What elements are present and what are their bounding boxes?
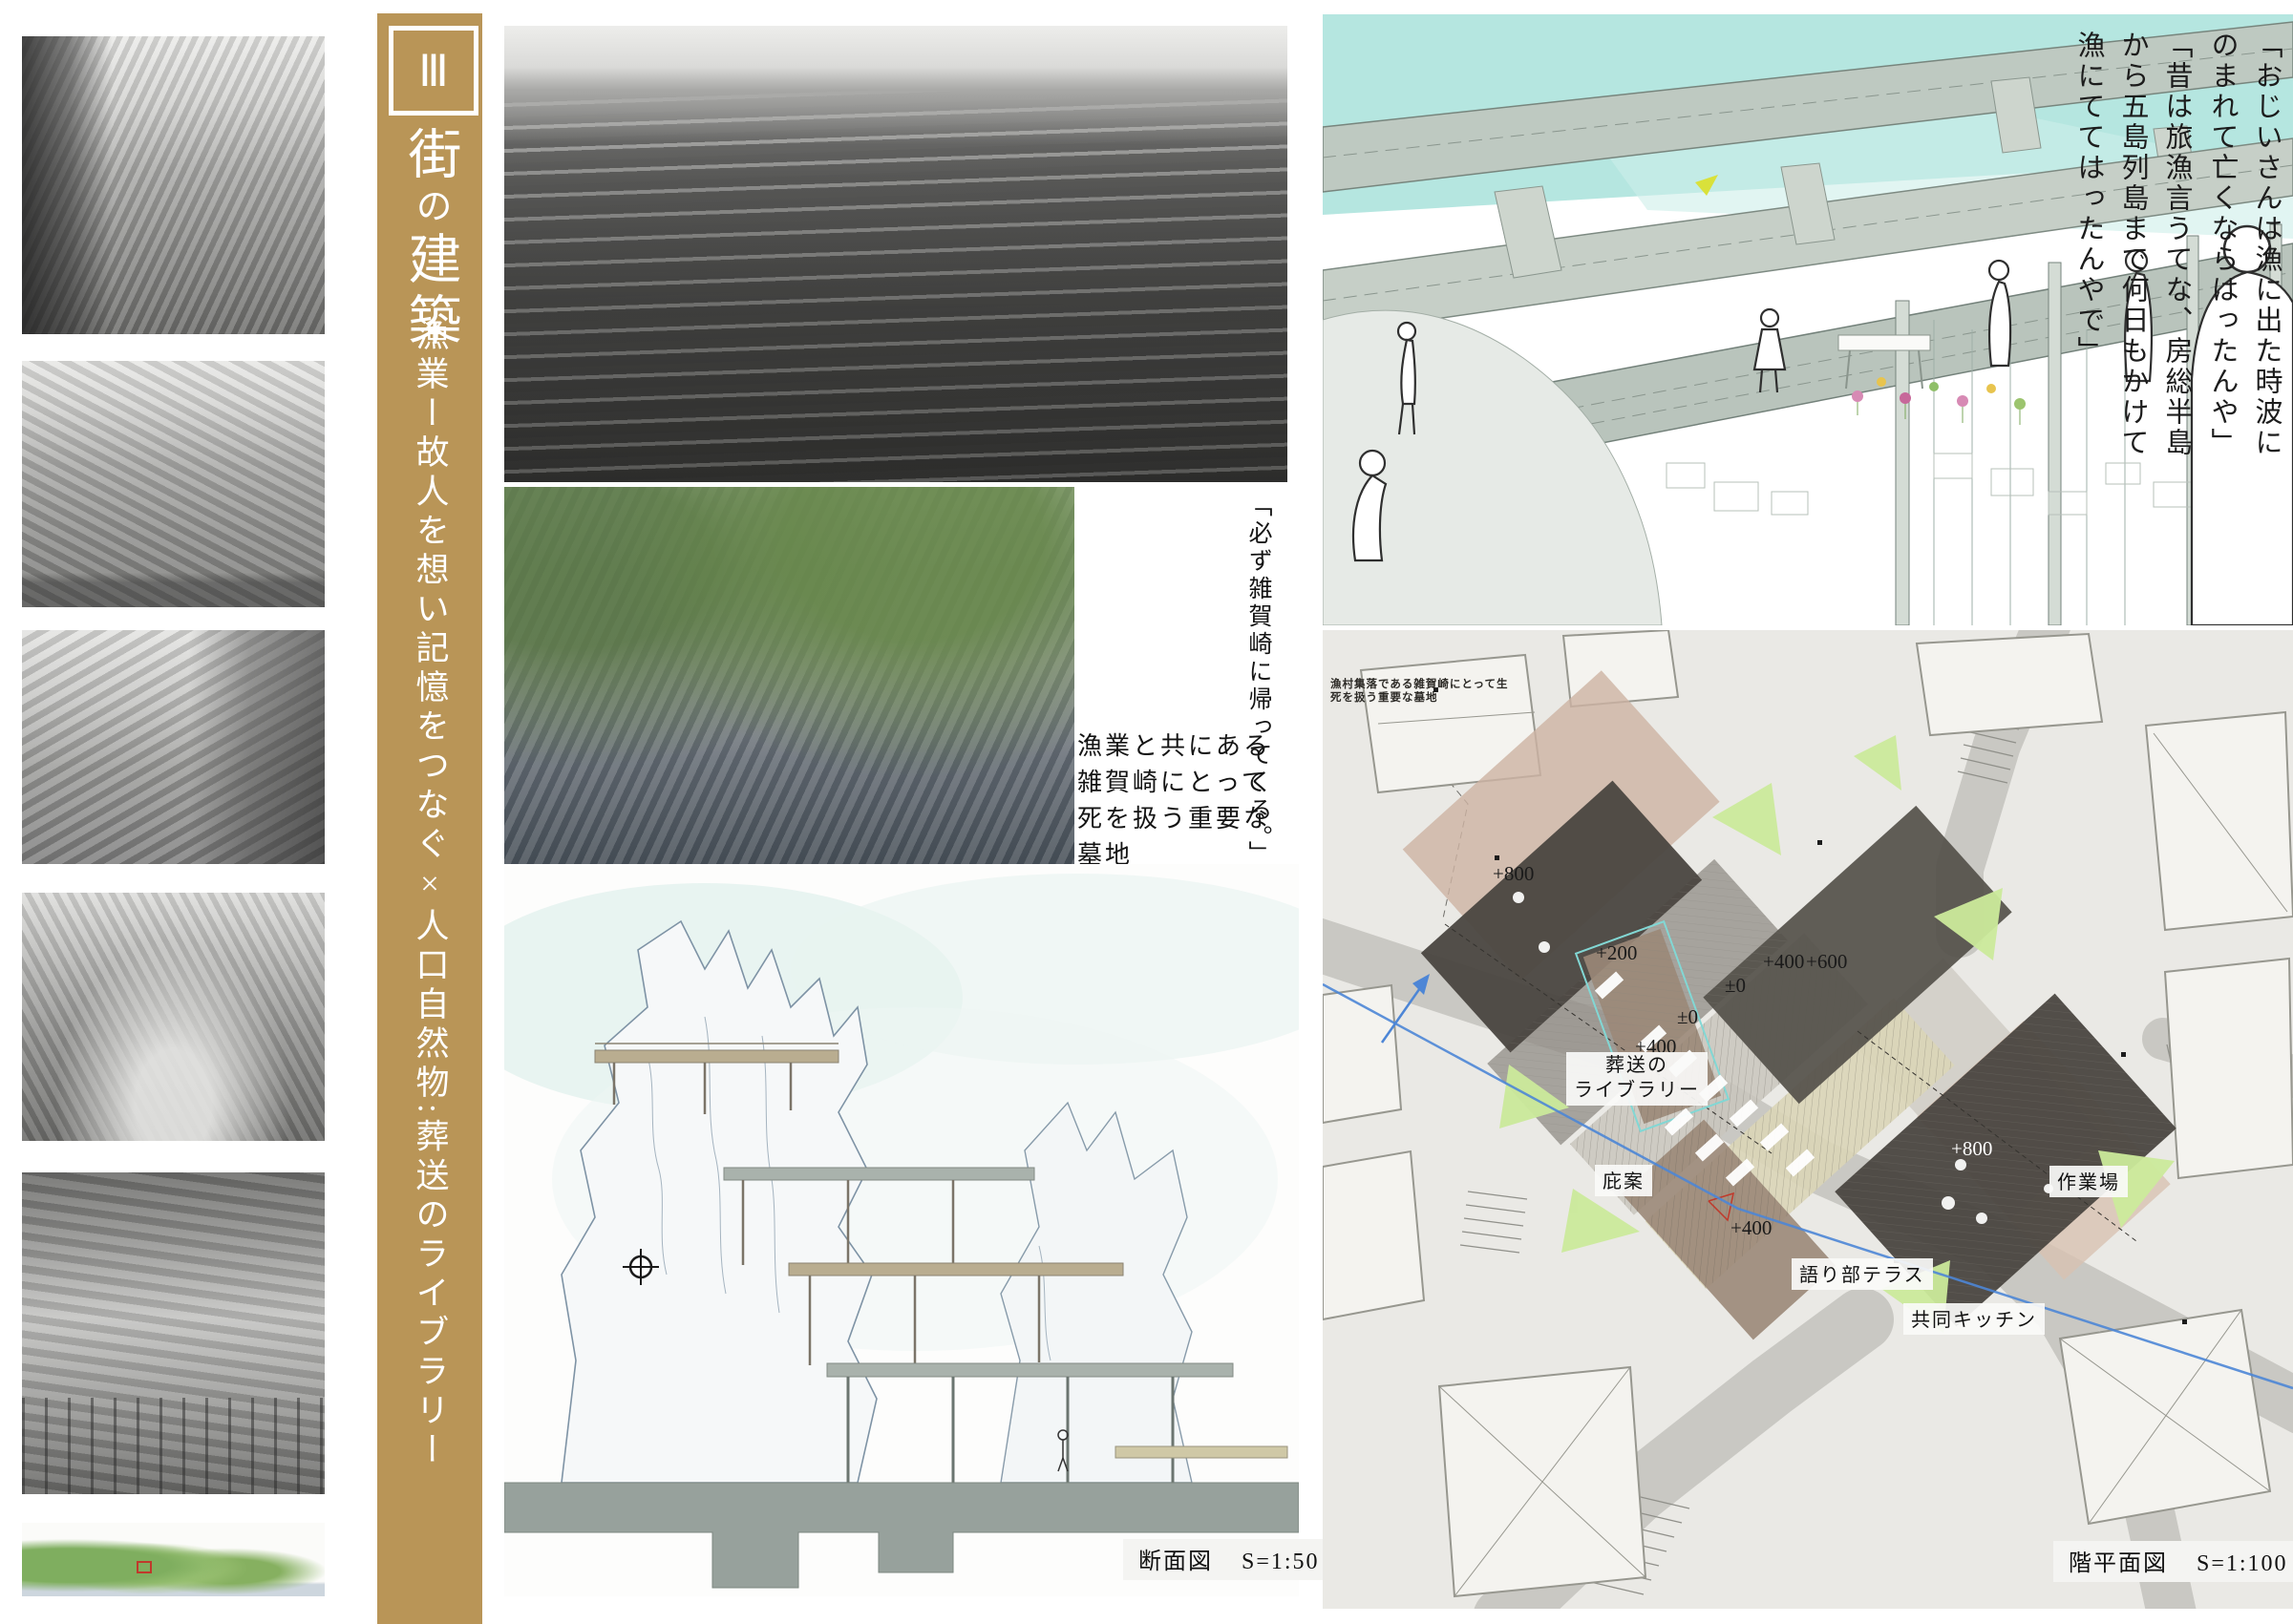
elevation-mark: +400 bbox=[1763, 950, 1804, 974]
label-workshop: 作業場 bbox=[2049, 1166, 2128, 1197]
elevation-mark: +200 bbox=[1596, 941, 1637, 965]
banner-title-part: の bbox=[410, 187, 450, 231]
cemetery-caption-line: 死を扱う重要な bbox=[1077, 800, 1271, 836]
section-drawing bbox=[504, 864, 1299, 1596]
plan-annotation-line: 漁村集落である雑賀崎にとって生 bbox=[1330, 678, 1508, 691]
coast-section-sketch bbox=[22, 1523, 325, 1596]
presentation-board: Ⅲ 街の建築 漁業ー故人を想い記憶をつなぐ×人口自然物:葬送のライブラリー 「必… bbox=[0, 0, 2293, 1624]
label-line: 葬送の bbox=[1574, 1053, 1700, 1078]
elevation-mark: +600 bbox=[1806, 950, 1847, 974]
site-location-marker bbox=[137, 1561, 152, 1573]
photo-town-fence bbox=[22, 1172, 325, 1494]
quote-line: から五島列島まで何日もかけて bbox=[2113, 31, 2153, 603]
label-funeral-library: 葬送の ライブラリー bbox=[1566, 1052, 1708, 1106]
elevation-mark: ±0 bbox=[1725, 974, 1746, 998]
section-scale: S=1:50 bbox=[1242, 1550, 1320, 1574]
chapter-numeral: Ⅲ bbox=[418, 45, 449, 96]
photo-town-alley bbox=[22, 36, 325, 334]
label-line: ライブラリー bbox=[1574, 1078, 1700, 1103]
title-banner: Ⅲ 街の建築 漁業ー故人を想い記憶をつなぐ×人口自然物:葬送のライブラリー bbox=[377, 13, 482, 1624]
photo-hillside-cemetery-bw bbox=[504, 26, 1287, 482]
quote-line: 「昔は旅漁言うてな、房総半島 bbox=[2156, 31, 2197, 603]
quote-line: 「おじいさんは漁に出た時波に bbox=[2246, 31, 2286, 603]
elevation-mark: +400 bbox=[1730, 1216, 1772, 1240]
chapter-numeral-box: Ⅲ bbox=[389, 26, 478, 116]
elevation-mark: +800 bbox=[1493, 862, 1534, 886]
section-title: 断面図 bbox=[1138, 1550, 1213, 1574]
photo-town-houses bbox=[22, 630, 325, 864]
plan-figure-label: 階平面図S=1:100 bbox=[2053, 1541, 2293, 1582]
cemetery-caption: 漁業と共にある 雑賀崎にとって 死を扱う重要な 墓地 bbox=[1077, 728, 1271, 873]
section-figure-label: 断面図S=1:50 bbox=[1123, 1539, 1335, 1580]
elevation-mark: ±0 bbox=[1677, 1005, 1698, 1029]
plan-annotation: 漁村集落である雑賀崎にとって生 死を扱う重要な墓地 bbox=[1330, 678, 1508, 705]
cemetery-caption-line: 雑賀崎にとって bbox=[1077, 764, 1271, 800]
quote-line: 漁にててはったんやで」 bbox=[2069, 31, 2109, 603]
plan-annotation-line: 死を扱う重要な墓地 bbox=[1330, 691, 1508, 705]
banner-subtitle: 漁業ー故人を想い記憶をつなぐ×人口自然物:葬送のライブラリー bbox=[414, 317, 447, 1471]
label-shared-kitchen: 共同キッチン bbox=[1903, 1303, 2045, 1335]
label-hisashi: 庇案 bbox=[1595, 1165, 1652, 1196]
label-storyteller-terrace: 語り部テラス bbox=[1792, 1258, 1933, 1290]
photo-town-street bbox=[22, 893, 325, 1141]
photo-town-roofs bbox=[22, 361, 325, 607]
cemetery-caption-line: 漁業と共にある bbox=[1077, 728, 1271, 764]
photo-town-color bbox=[504, 487, 1074, 864]
quote-line: のまれて亡くならはったんや」 bbox=[2202, 31, 2242, 603]
banner-title-part: 街 bbox=[400, 126, 459, 187]
plan-title: 階平面図 bbox=[2069, 1551, 2168, 1576]
site-plan bbox=[1323, 630, 2293, 1609]
plan-scale: S=1:100 bbox=[2197, 1551, 2288, 1576]
elevation-mark: +800 bbox=[1951, 1137, 1992, 1161]
